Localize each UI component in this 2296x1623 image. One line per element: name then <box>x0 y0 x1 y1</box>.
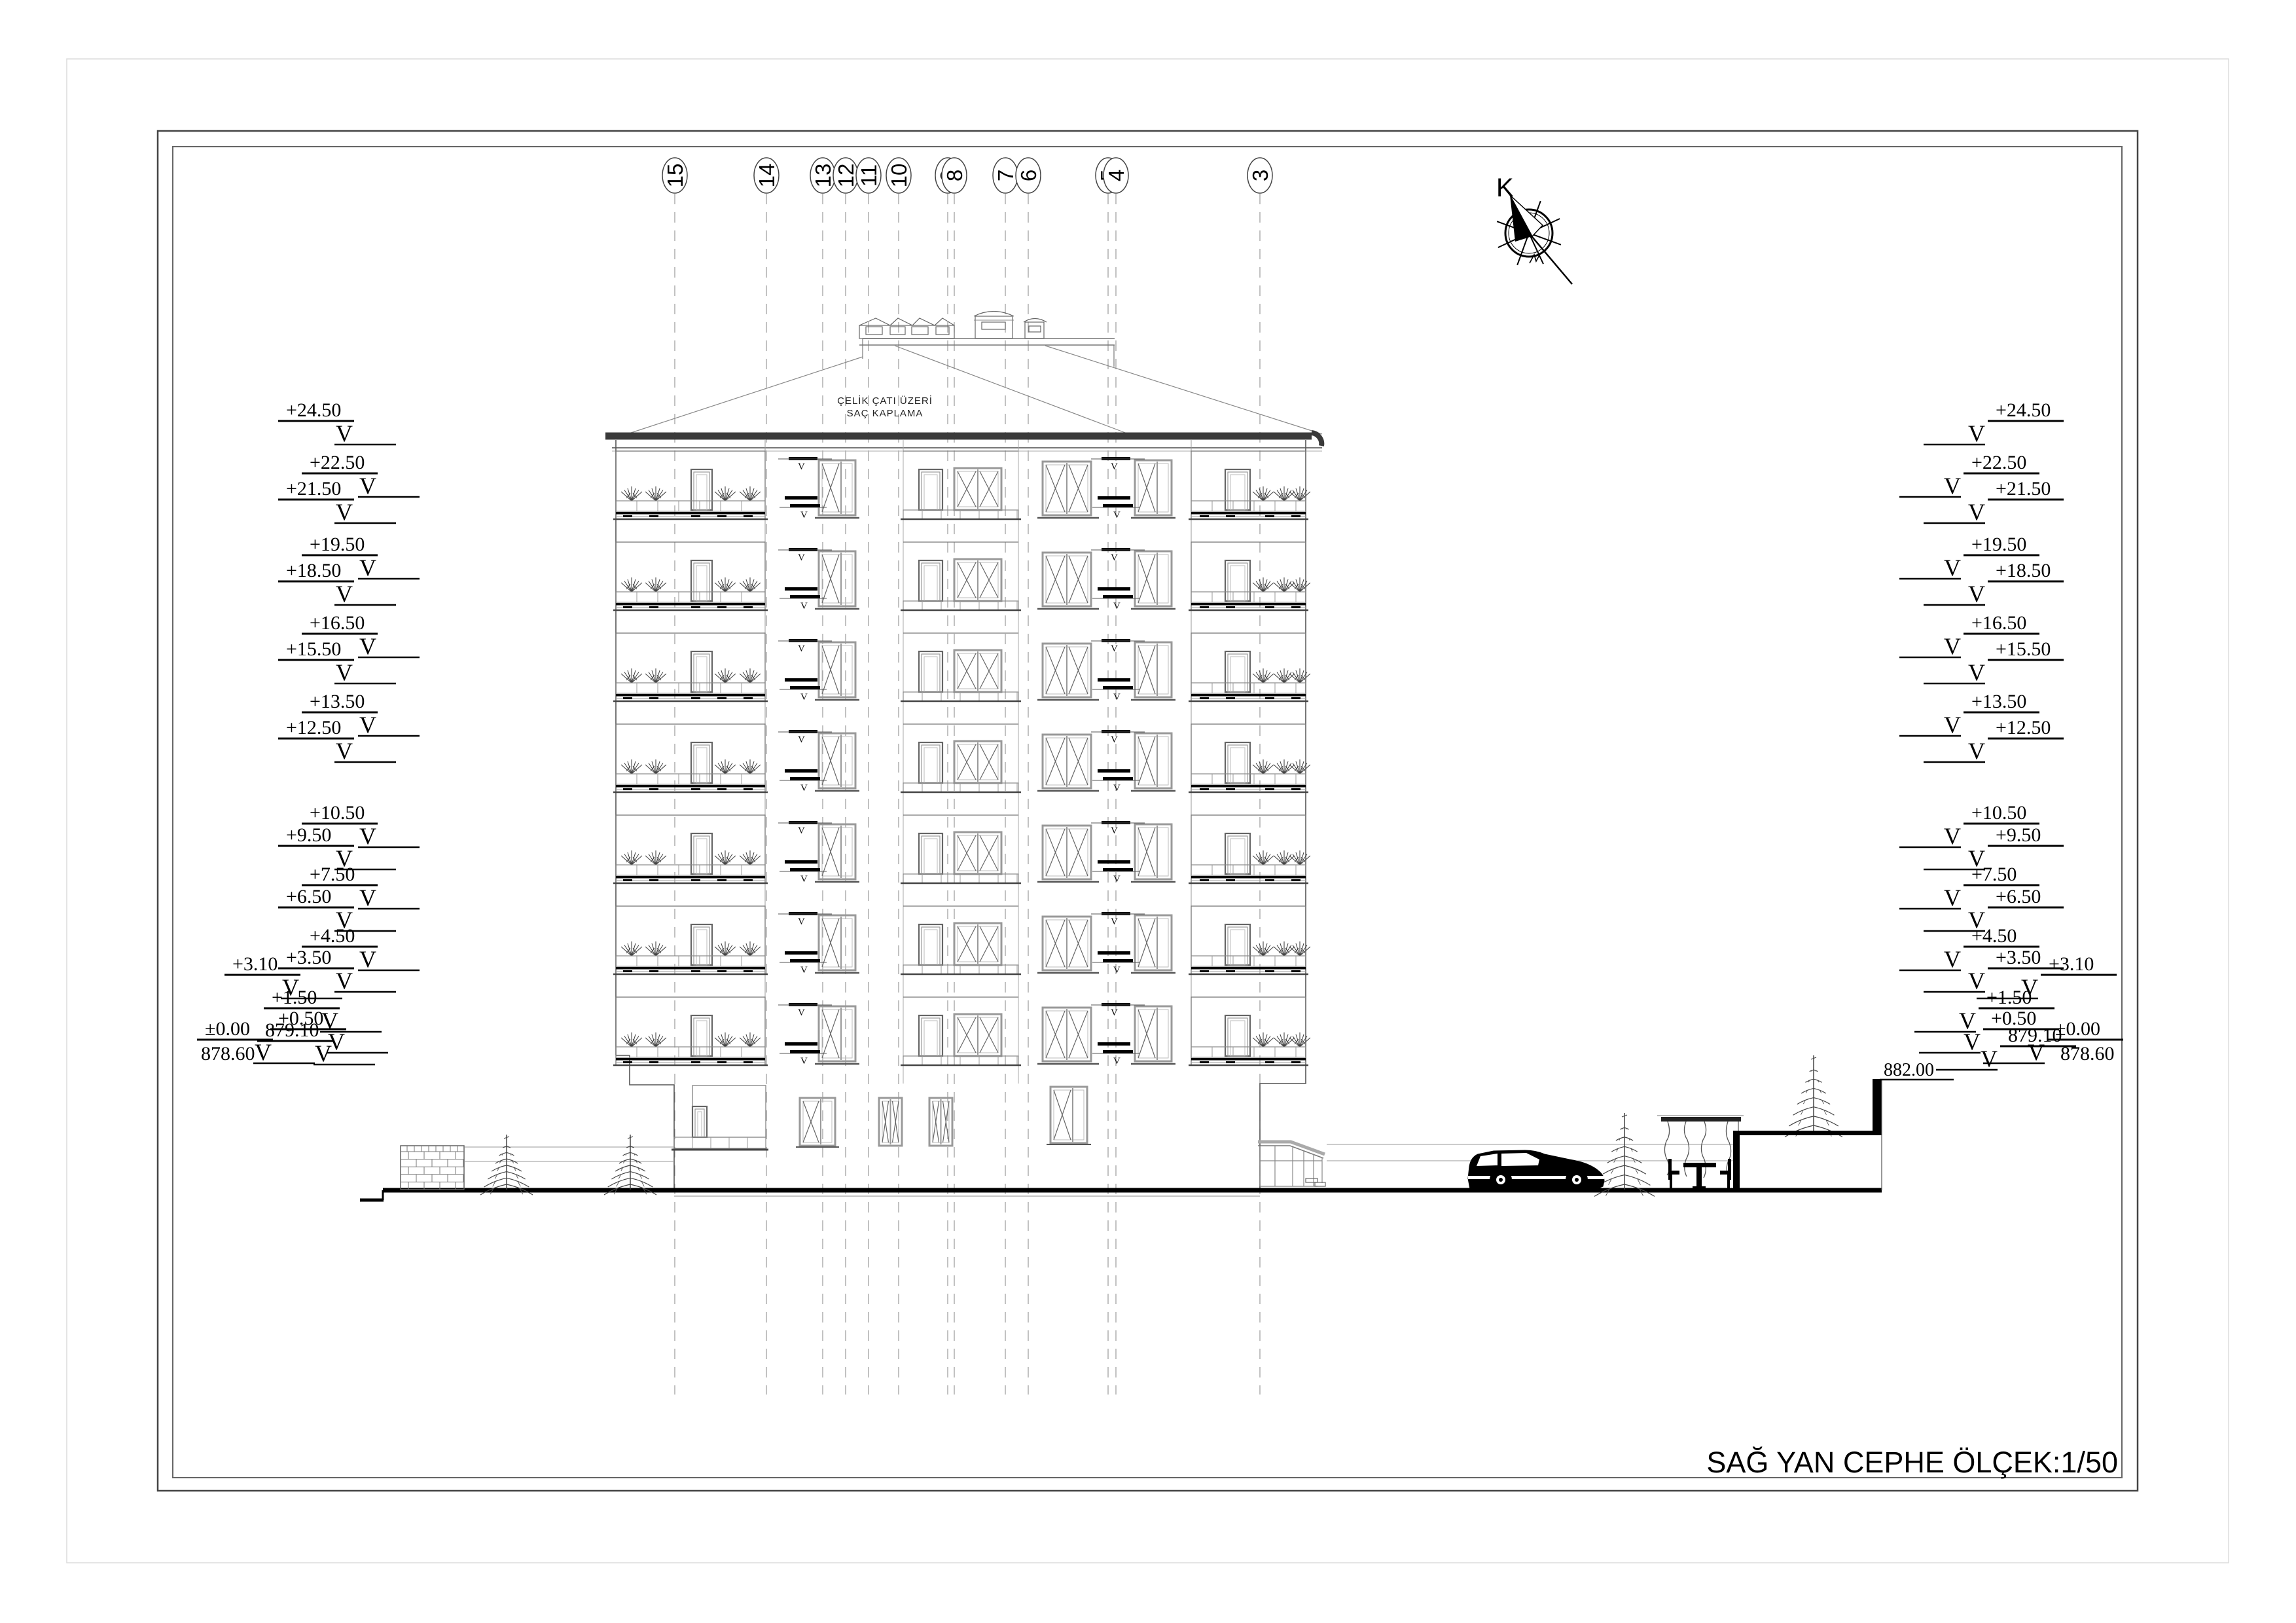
door-panel <box>924 1021 937 1056</box>
window-inner <box>803 1101 832 1142</box>
mini-level-bar <box>1098 860 1130 864</box>
planter-strip <box>616 876 765 879</box>
branch <box>507 1165 522 1171</box>
car <box>1468 1150 1604 1191</box>
datum-v: V <box>1944 712 1961 738</box>
ground-floor <box>630 1084 1325 1186</box>
door-frame <box>691 924 712 965</box>
roof-note-line2: SAÇ KAPLAMA <box>847 408 924 419</box>
level-label: +22.50 <box>310 452 365 473</box>
soil-dash <box>717 970 726 972</box>
soil-dash <box>1226 970 1235 972</box>
door-frame <box>1225 651 1250 692</box>
mini-level-bar <box>785 860 817 864</box>
soil-dash <box>691 879 700 881</box>
mini-level-bar <box>790 959 820 962</box>
table-pedestal <box>1696 1167 1702 1187</box>
door-panel <box>924 930 937 965</box>
datum-v: V <box>1944 946 1961 972</box>
pergola-beam <box>1661 1117 1741 1122</box>
balcony <box>1191 724 1306 792</box>
door-panel <box>696 930 707 965</box>
branch <box>1814 1098 1830 1104</box>
mini-datum-v: V <box>800 692 808 702</box>
wall-top-level-label: 882.00 <box>1884 1060 1934 1080</box>
door-frame <box>691 651 712 692</box>
door-frame <box>691 1015 712 1056</box>
level-label: +3.50 <box>1996 947 2041 968</box>
grid-bubble-label: 4 <box>1104 170 1128 181</box>
level-label: +6.50 <box>1996 886 2041 907</box>
door-panel <box>924 839 937 874</box>
soil-dash <box>691 606 700 608</box>
bay-slab-band <box>903 783 1018 792</box>
mini-datum-v: V <box>800 1056 808 1067</box>
door-frame <box>919 469 942 510</box>
mini-level-bar <box>790 777 820 780</box>
floors: VVVVVVVVVVVVVVVVVVVVVVVVVVVV <box>613 451 1310 1067</box>
branch <box>488 1172 507 1179</box>
planter-strip <box>616 967 765 970</box>
levels-left: +24.50V+22.50V+21.50V+19.50V+18.50V+16.5… <box>197 399 420 1067</box>
door-panel <box>1230 839 1245 874</box>
wall-left <box>616 440 674 1188</box>
level-label: 878.60 <box>201 1043 255 1065</box>
level-label: +24.50 <box>286 399 341 421</box>
level-label: +4.50 <box>1971 925 2017 947</box>
soil-dash <box>1200 606 1209 608</box>
chair-leg <box>1670 1175 1672 1190</box>
soil-dash <box>1200 697 1209 699</box>
datum-v: V <box>315 1040 332 1067</box>
door-panel <box>924 475 937 510</box>
datum-v: V <box>336 659 353 685</box>
branch <box>1814 1116 1839 1126</box>
planter-strip <box>1191 512 1306 515</box>
chair-leg <box>1727 1175 1730 1190</box>
soil-dash <box>1265 879 1274 881</box>
branch <box>1797 1098 1814 1104</box>
balcony <box>1191 997 1306 1065</box>
mini-datum-v: V <box>800 783 808 793</box>
mini-datum-v: V <box>798 462 805 472</box>
mini-level-bar <box>1098 587 1130 591</box>
datum-v: V <box>1944 823 1961 849</box>
door-frame <box>919 651 942 692</box>
datum-v: V <box>336 738 353 764</box>
grid-bubble-label: 12 <box>834 164 858 188</box>
soil-dash <box>1291 879 1300 881</box>
soil-dash <box>1265 606 1274 608</box>
soil-dash <box>1200 970 1209 972</box>
soil-dash <box>717 879 726 881</box>
door-panel <box>696 839 707 874</box>
sheet-frame <box>67 59 2229 1563</box>
floor: VVVV <box>613 451 1310 520</box>
branch <box>507 1172 526 1179</box>
soil-dash <box>1226 1061 1235 1063</box>
level-label: +19.50 <box>1971 534 2026 555</box>
roof-hip <box>1045 346 1322 434</box>
elevation-drawing: 1514131211109876543+24.50V+22.50V+21.50V… <box>0 0 2296 1623</box>
soil-dash <box>717 697 726 699</box>
level-label: +6.50 <box>286 886 331 907</box>
door-panel <box>924 566 937 601</box>
soil-dash <box>623 879 632 881</box>
window-inner <box>822 555 852 603</box>
level-label: +3.10 <box>232 953 278 975</box>
door-frame <box>691 469 712 510</box>
mini-level-bar <box>1098 1042 1130 1046</box>
soil-dash <box>744 697 753 699</box>
roof-window <box>982 322 1005 329</box>
mini-datum-v: V <box>1113 510 1121 520</box>
soil-dash <box>744 879 753 881</box>
roof-structure-arc <box>1024 319 1047 323</box>
floor: VVVV <box>613 815 1310 884</box>
branch <box>484 1178 507 1187</box>
mini-datum-v: V <box>1111 917 1118 927</box>
level-label: +21.50 <box>1996 478 2051 500</box>
datum-v: V <box>1944 473 1961 499</box>
roof-structure-box <box>1025 322 1044 338</box>
retaining-wall-top <box>1733 1131 1882 1135</box>
mini-datum-v: V <box>800 601 808 611</box>
roof-structure <box>859 318 954 325</box>
datum-v: V <box>1944 633 1961 659</box>
mini-level-bar <box>1098 678 1130 682</box>
branch <box>1814 1107 1834 1116</box>
level-label: +12.50 <box>286 717 341 739</box>
grid-bubble-label: 7 <box>994 170 1018 181</box>
door-frame <box>1225 469 1250 510</box>
grid-axes: 1514131211109876543 <box>662 158 1272 1395</box>
soil-dash <box>623 697 632 699</box>
mini-datum-v: V <box>800 510 808 520</box>
soil-dash <box>1200 788 1209 790</box>
window-inner <box>822 828 852 876</box>
mini-level-bar <box>1103 868 1133 871</box>
soil-dash <box>1291 606 1300 608</box>
branch <box>492 1165 507 1171</box>
mini-datum-v: V <box>1113 692 1121 702</box>
brick-wall-outline <box>401 1146 464 1190</box>
grid-bubble-label: 11 <box>857 164 881 187</box>
soil-dash <box>717 788 726 790</box>
branch <box>630 1172 649 1179</box>
building <box>616 440 1306 1196</box>
soil-dash <box>691 970 700 972</box>
datum-v: V <box>359 555 376 581</box>
mini-level-bar <box>1098 951 1130 955</box>
datum-v: V <box>1968 581 1985 607</box>
planter-strip <box>1191 694 1306 697</box>
door-frame <box>1225 1015 1250 1056</box>
mini-datum-v: V <box>798 735 805 745</box>
window-inner <box>1054 1090 1084 1140</box>
mini-datum-v: V <box>1111 462 1118 472</box>
door-panel <box>696 1021 707 1056</box>
mini-datum-v: V <box>798 1008 805 1018</box>
window-inner <box>1138 464 1168 512</box>
mini-datum-v: V <box>798 644 805 654</box>
level-label: +24.50 <box>1996 399 2051 421</box>
level-label: +16.50 <box>310 612 365 634</box>
mini-level-bar <box>1103 686 1133 689</box>
soil-dash <box>1226 606 1235 608</box>
drawing-sheet: { "sheet": { "title": "SAĞ YAN CEPHE ÖLÇ… <box>0 0 2296 1623</box>
roof-window <box>912 327 928 335</box>
twig <box>509 1147 509 1148</box>
soil-dash <box>649 788 658 790</box>
mini-level-bar <box>1103 959 1133 962</box>
soil-dash <box>1265 515 1274 517</box>
soil-dash <box>1200 1061 1209 1063</box>
vine <box>1684 1122 1689 1176</box>
mini-datum-v: V <box>1113 1056 1121 1067</box>
drawing-root: 1514131211109876543+24.50V+22.50V+21.50V… <box>67 59 2229 1563</box>
level-label: +9.50 <box>1996 824 2041 846</box>
level-label: +19.50 <box>310 534 365 555</box>
branch <box>630 1178 653 1187</box>
datum-v: V <box>359 712 376 738</box>
datum-v: V <box>2028 1039 2045 1065</box>
levels-right: +24.50V+22.50V+21.50V+19.50V+18.50V+16.5… <box>1899 399 2123 1072</box>
retaining-wall-right <box>1873 1079 1882 1135</box>
level-label: +3.50 <box>286 947 331 968</box>
datum-v: V <box>359 633 376 659</box>
door-frame <box>1225 924 1250 965</box>
pine-tree <box>480 1135 533 1195</box>
window-inner <box>822 464 852 512</box>
branch <box>630 1165 645 1171</box>
mini-datum-v: V <box>1113 783 1121 793</box>
branch <box>1624 1146 1638 1152</box>
mini-level-bar <box>790 595 820 598</box>
soil-dash <box>1200 879 1209 881</box>
soil-dash <box>1291 970 1300 972</box>
roof-window <box>936 327 949 335</box>
planter-strip <box>1191 967 1306 970</box>
branch <box>1624 1156 1641 1163</box>
north-label: K <box>1496 173 1514 202</box>
bay-slab-band <box>903 601 1018 610</box>
mini-datum-v: V <box>798 826 805 836</box>
grid-bubble-label: 3 <box>1248 170 1272 181</box>
balcony <box>1191 906 1306 974</box>
branch <box>615 1165 630 1171</box>
window-inner <box>822 646 852 694</box>
soil-dash <box>649 515 658 517</box>
soil-dash <box>744 515 753 517</box>
level-label: +1.50 <box>272 987 317 1008</box>
window-inner <box>822 1010 852 1058</box>
entrance-platform <box>674 1137 766 1148</box>
door-leaf <box>695 1109 704 1137</box>
branch <box>1611 1146 1624 1152</box>
soil-dash <box>623 1061 632 1063</box>
door-panel <box>696 566 707 601</box>
grid-bubble-label: 13 <box>811 164 835 188</box>
floor: VVVV <box>613 633 1310 702</box>
roof-window <box>890 327 905 335</box>
soil-dash <box>649 606 658 608</box>
datum-v: V <box>1968 499 1985 525</box>
soil-dash <box>744 606 753 608</box>
eave-gutter <box>1312 433 1321 446</box>
door-frame <box>691 833 712 874</box>
level-label: +7.50 <box>1971 864 2017 885</box>
soil-dash <box>691 788 700 790</box>
paper-edge <box>67 59 2229 1563</box>
planter-strip <box>616 694 765 697</box>
soil-dash <box>1291 788 1300 790</box>
mini-level-bar <box>785 1042 817 1046</box>
level-label: +4.50 <box>310 925 355 947</box>
datum-v: V <box>1944 884 1961 911</box>
bay-slab-band <box>903 874 1018 883</box>
level-label: 878.60 <box>2060 1043 2115 1065</box>
table-base <box>1693 1186 1706 1190</box>
table-top <box>1683 1163 1716 1167</box>
twig <box>632 1147 633 1148</box>
balcony <box>1191 815 1306 883</box>
mini-level-bar <box>1098 769 1130 773</box>
roof-structure-box <box>859 325 954 338</box>
mini-datum-v: V <box>1113 601 1121 611</box>
soil-dash <box>623 606 632 608</box>
door-frame <box>1225 560 1250 601</box>
soil-dash <box>1265 697 1274 699</box>
soil-dash <box>744 1061 753 1063</box>
door-frame <box>919 1015 942 1056</box>
soil-dash <box>744 970 753 972</box>
door-frame <box>919 560 942 601</box>
planter-strip <box>1191 603 1306 606</box>
soil-dash <box>1265 970 1274 972</box>
mini-level-bar <box>790 1050 820 1053</box>
soil-dash <box>1291 515 1300 517</box>
planter-strip <box>1191 785 1306 788</box>
level-label: +22.50 <box>1971 452 2026 473</box>
window-inner <box>1138 919 1168 967</box>
datum-v: V <box>1968 659 1985 685</box>
mini-level-bar <box>1103 1050 1133 1053</box>
door-frame <box>691 742 712 783</box>
bay-slab-band <box>903 510 1018 519</box>
roof-structure-arc <box>974 312 1014 317</box>
door-frame <box>919 742 942 783</box>
entrance-bay <box>692 1085 766 1137</box>
mini-datum-v: V <box>1111 826 1118 836</box>
datum-v: V <box>1964 1029 1981 1055</box>
window-inner <box>1138 555 1168 603</box>
branch <box>1603 1165 1624 1174</box>
level-label: +1.50 <box>1986 987 2032 1008</box>
grid-bubble-label: 10 <box>887 164 911 188</box>
soil-dash <box>649 1061 658 1063</box>
level-label: +16.50 <box>1971 612 2026 634</box>
door-panel <box>1230 566 1245 601</box>
soil-dash <box>1291 1061 1300 1063</box>
door-panel <box>924 657 937 692</box>
datum-v: V <box>359 946 376 972</box>
door-frame <box>1225 742 1250 783</box>
mini-datum-v: V <box>798 553 805 563</box>
datum-v: V <box>1944 555 1961 581</box>
floor: VVVV <box>613 724 1310 793</box>
level-label: 879.10 <box>265 1019 319 1041</box>
garden-table-set <box>1668 1159 1731 1190</box>
mini-level-bar <box>1103 595 1133 598</box>
soil-dash <box>717 606 726 608</box>
level-label: +12.50 <box>1996 717 2051 739</box>
brick-wall <box>401 1146 464 1190</box>
door-panel <box>1230 930 1245 965</box>
soil-dash <box>1226 879 1235 881</box>
window-inner <box>1138 828 1168 876</box>
floor: VVVV <box>613 997 1310 1067</box>
outer-border <box>158 131 2138 1491</box>
grid-bubble-label: 6 <box>1016 170 1041 181</box>
soil-dash <box>1291 697 1300 699</box>
branch <box>1624 1175 1650 1186</box>
door-panel <box>1230 1021 1245 1056</box>
branch <box>507 1178 529 1187</box>
vine <box>1701 1122 1706 1178</box>
wall-right <box>1260 440 1306 1188</box>
door-panel <box>924 748 937 783</box>
door-frame <box>1225 833 1250 874</box>
floor: VVVV <box>613 542 1310 611</box>
bay-slab-band <box>903 1056 1018 1065</box>
level-label: +9.50 <box>286 824 331 846</box>
door-frame <box>919 924 942 965</box>
grid-bubble-label: 15 <box>663 164 687 188</box>
stair-step <box>1315 1182 1325 1186</box>
door-frame <box>692 1106 707 1137</box>
chair-seat <box>1668 1171 1679 1175</box>
level-label: +3.10 <box>2049 953 2094 975</box>
soil-dash <box>623 970 632 972</box>
level-label: +21.50 <box>286 478 341 500</box>
door-panel <box>1230 748 1245 783</box>
mini-datum-v: V <box>1111 644 1118 654</box>
datum-v: V <box>359 823 376 849</box>
mini-level-bar <box>785 951 817 955</box>
door-panel <box>696 475 707 510</box>
window-inner <box>1138 646 1168 694</box>
roof-hip <box>895 346 1127 433</box>
mini-level-bar <box>790 686 820 689</box>
mini-level-bar <box>785 587 817 591</box>
roof <box>605 312 1322 452</box>
datum-v: V <box>1968 420 1985 447</box>
roof-window <box>1029 326 1041 332</box>
soil-dash <box>623 515 632 517</box>
datum-v: V <box>359 884 376 911</box>
branch <box>611 1172 630 1179</box>
level-label: +7.50 <box>310 864 355 885</box>
planter-strip <box>616 512 765 515</box>
twig <box>628 1147 628 1148</box>
stair-step <box>1306 1178 1318 1182</box>
soil-dash <box>717 1061 726 1063</box>
soil-dash <box>1200 515 1209 517</box>
roof-structure-box <box>975 316 1013 338</box>
mini-datum-v: V <box>800 874 808 884</box>
inner-border <box>173 147 2122 1478</box>
